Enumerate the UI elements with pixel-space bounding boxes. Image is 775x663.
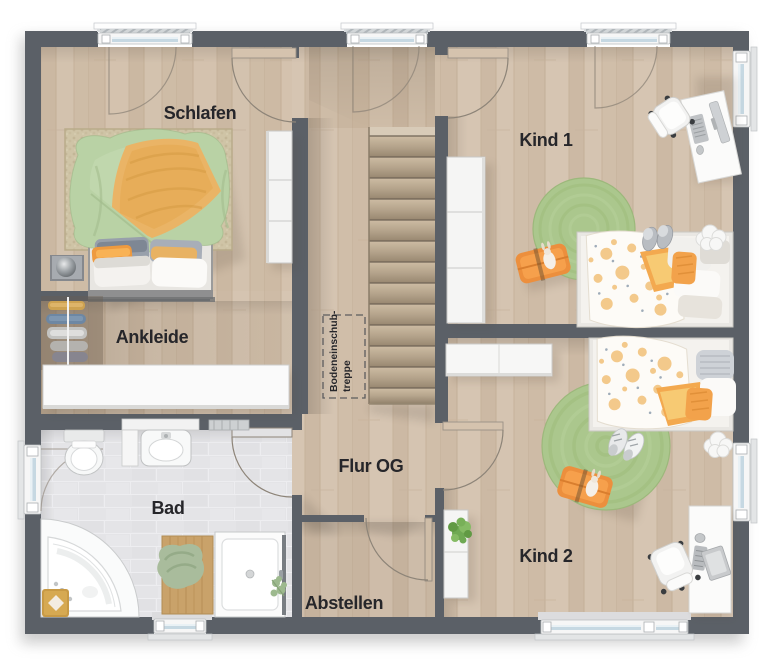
svg-text:Bodeneinschub-: Bodeneinschub- bbox=[329, 310, 340, 392]
svg-text:Bad: Bad bbox=[151, 498, 184, 518]
svg-text:Ankleide: Ankleide bbox=[116, 327, 189, 347]
svg-text:Abstellen: Abstellen bbox=[305, 593, 383, 613]
svg-text:Kind 2: Kind 2 bbox=[519, 546, 572, 566]
svg-text:Kind 1: Kind 1 bbox=[519, 130, 572, 150]
svg-text:Schlafen: Schlafen bbox=[164, 103, 237, 123]
svg-text:Flur OG: Flur OG bbox=[339, 456, 404, 476]
svg-text:treppe: treppe bbox=[342, 360, 353, 392]
